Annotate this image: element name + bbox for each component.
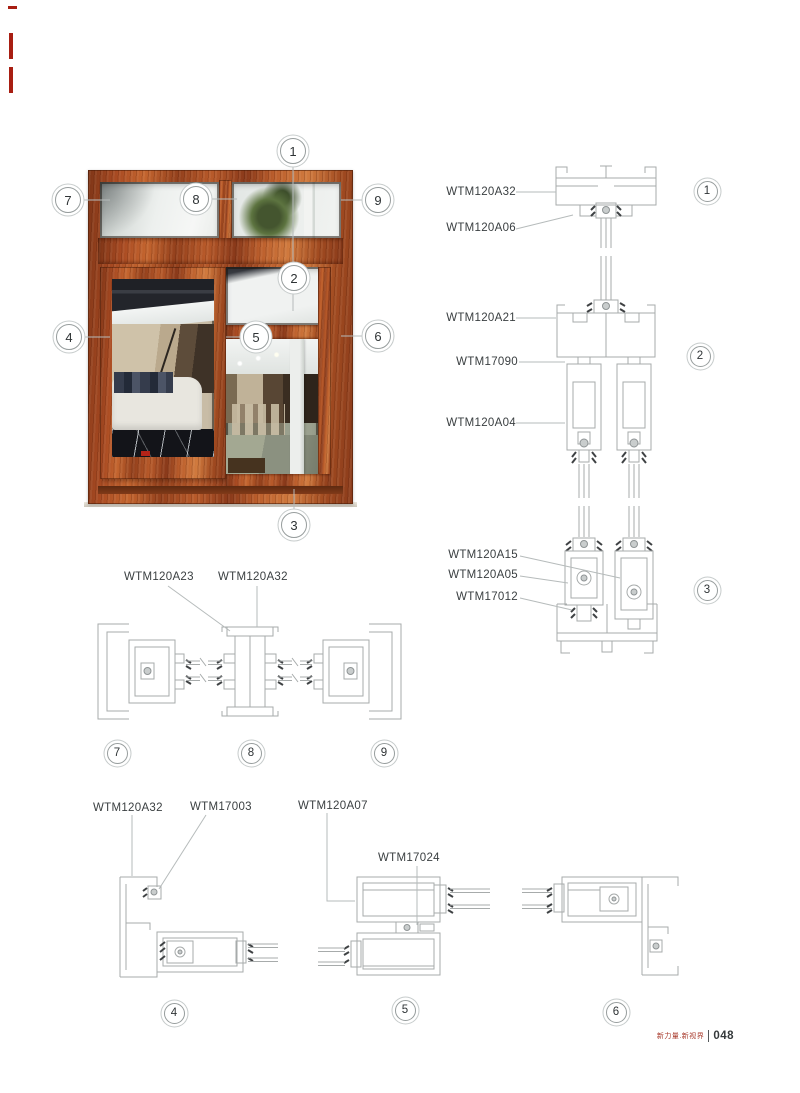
interior-floor-tiles bbox=[112, 429, 214, 457]
drawing-section-3 bbox=[557, 538, 657, 653]
part-label: WTM120A04 bbox=[420, 417, 516, 430]
drawing-section-1 bbox=[556, 166, 656, 300]
transom-right-glass bbox=[232, 182, 341, 238]
drawing-section-7 bbox=[98, 624, 206, 719]
photo-callout-5: 5 bbox=[243, 324, 269, 350]
footer-page-number: 048 bbox=[713, 1030, 734, 1042]
part-label: WTM17090 bbox=[420, 356, 518, 369]
footer-brand-text: 新力量.新视界 bbox=[657, 1031, 704, 1041]
red-edge-mark bbox=[9, 67, 13, 93]
interior-ceiling-spotlights bbox=[226, 339, 318, 374]
section-callout-7: 7 bbox=[107, 743, 128, 764]
section-callout-4: 4 bbox=[164, 1003, 185, 1024]
part-label: WTM17024 bbox=[378, 852, 440, 865]
right-upper-glass bbox=[226, 267, 328, 325]
window-product-photo bbox=[88, 170, 353, 504]
section-callout-8: 8 bbox=[241, 743, 262, 764]
transom-mullion bbox=[219, 180, 232, 240]
part-label: WTM120A06 bbox=[420, 222, 516, 235]
part-label: WTM120A21 bbox=[420, 312, 516, 325]
catalog-page: WTM120A32 WTM120A06 WTM120A21 WTM17090 W… bbox=[0, 0, 800, 1093]
part-label: WTM120A23 bbox=[124, 571, 194, 584]
drawing-section-8 bbox=[208, 627, 298, 716]
part-label: WTM120A32 bbox=[420, 186, 516, 199]
section-callout-1: 1 bbox=[697, 181, 718, 202]
photo-callout-7: 7 bbox=[55, 187, 81, 213]
interior-pillows bbox=[114, 372, 173, 393]
section-callout-9: 9 bbox=[374, 743, 395, 764]
drawing-section-6 bbox=[522, 877, 678, 975]
section-callout-6: 6 bbox=[606, 1002, 627, 1023]
section-callout-2: 2 bbox=[690, 346, 711, 367]
part-label: WTM120A15 bbox=[422, 549, 518, 562]
part-label: WTM120A05 bbox=[422, 569, 518, 582]
page-footer: 新力量.新视界 048 bbox=[657, 1030, 734, 1042]
red-edge-mark bbox=[8, 6, 17, 9]
left-sash-glass bbox=[112, 279, 214, 457]
photo-callout-8: 8 bbox=[183, 186, 209, 212]
section-drawings bbox=[0, 0, 800, 1093]
part-label: WTM120A07 bbox=[298, 800, 368, 813]
part-label: WTM120A32 bbox=[93, 802, 163, 815]
left-sliding-sash bbox=[100, 267, 226, 479]
photo-callout-4: 4 bbox=[56, 324, 82, 350]
section-callout-3: 3 bbox=[697, 580, 718, 601]
drawing-section-9 bbox=[300, 624, 401, 719]
photo-callout-2: 2 bbox=[281, 265, 307, 291]
interior-dining-set bbox=[232, 404, 285, 439]
red-edge-mark bbox=[9, 33, 13, 59]
drawing-section-2 bbox=[557, 300, 655, 537]
photo-callout-3: 3 bbox=[281, 512, 307, 538]
photo-callout-1: 1 bbox=[280, 138, 306, 164]
part-label: WTM17003 bbox=[190, 801, 252, 814]
right-sash-top-rail bbox=[226, 325, 328, 339]
interior-red-object bbox=[141, 451, 150, 456]
footer-divider bbox=[708, 1030, 709, 1042]
bottom-track bbox=[98, 486, 343, 494]
right-sash-glass bbox=[226, 339, 318, 474]
drawing-section-4 bbox=[120, 877, 278, 977]
right-sash-bottom-rail bbox=[226, 474, 331, 486]
interior-white-column bbox=[290, 339, 304, 474]
drawing-section-5 bbox=[318, 877, 490, 975]
photo-callout-6: 6 bbox=[365, 323, 391, 349]
section-callout-5: 5 bbox=[395, 1000, 416, 1021]
interior-floor bbox=[226, 435, 318, 474]
photo-callout-9: 9 bbox=[365, 187, 391, 213]
right-sash-stile bbox=[318, 267, 331, 486]
transom-rail bbox=[98, 238, 343, 264]
part-label: WTM120A32 bbox=[218, 571, 288, 584]
interior-rug bbox=[228, 458, 265, 474]
part-label: WTM17012 bbox=[430, 591, 518, 604]
